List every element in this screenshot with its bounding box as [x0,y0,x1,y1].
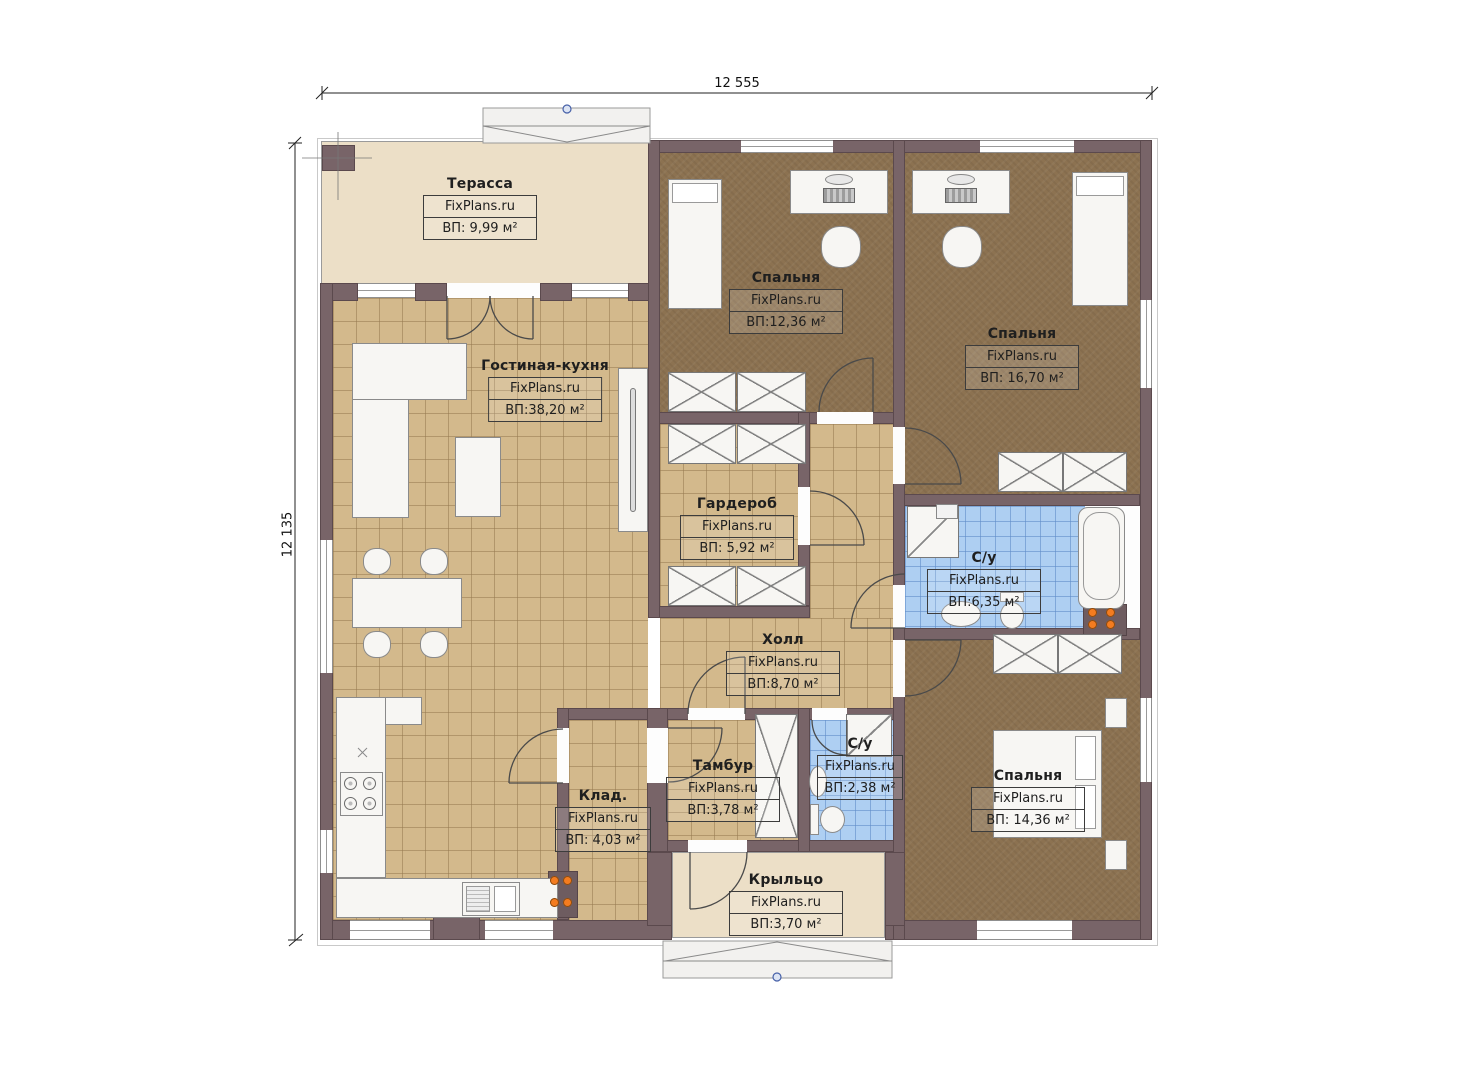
watermark-box: FixPlans.ru ВП: 5,92 м² [680,515,794,560]
room-label-porch: Крыльцо FixPlans.ru ВП:3,70 м² [729,872,843,936]
watermark-text: FixPlans.ru [730,290,842,312]
watermark-box: FixPlans.ru ВП: 14,36 м² [971,787,1085,832]
watermark-box: FixPlans.ru ВП:3,78 м² [666,777,780,822]
room-area: ВП: 16,70 м² [966,368,1078,389]
door-arc [490,296,533,339]
room-name: Спальня [965,326,1079,342]
dimension-top-value: 12 555 [714,76,760,91]
room-name: Тамбур [666,758,780,774]
watermark-text: FixPlans.ru [556,808,650,830]
room-area: ВП: 9,99 м² [424,218,536,239]
watermark-text: FixPlans.ru [972,788,1084,810]
door-arc [905,640,961,696]
roof-marker-icon [563,105,571,113]
watermark-box: FixPlans.ru ВП: 9,99 м² [423,195,537,240]
room-label-bedroom3: Спальня FixPlans.ru ВП: 14,36 м² [971,768,1085,832]
watermark-box: FixPlans.ru ВП: 16,70 м² [965,345,1079,390]
door-arc [905,428,961,484]
room-name: Холл [726,632,840,648]
door-arc [851,574,905,628]
door-arc [447,296,490,339]
watermark-box: FixPlans.ru ВП: 4,03 м² [555,807,651,852]
room-area: ВП:3,70 м² [730,914,842,935]
room-label-bedroom2: Спальня FixPlans.ru ВП: 16,70 м² [965,326,1079,390]
watermark-box: FixPlans.ru ВП:3,70 м² [729,891,843,936]
room-name: Клад. [555,788,651,804]
room-name: Гостиная-кухня [481,358,609,374]
room-name: Гардероб [680,496,794,512]
room-name: С/у [927,550,1041,566]
room-label-bath2: С/у FixPlans.ru ВП:2,38 м² [817,736,903,800]
room-label-bedroom1: Спальня FixPlans.ru ВП:12,36 м² [729,270,843,334]
room-area: ВП: 4,03 м² [556,830,650,851]
room-area: ВП:3,78 м² [667,800,779,821]
watermark-text: FixPlans.ru [928,570,1040,592]
room-area: ВП:38,20 м² [489,400,601,421]
watermark-text: FixPlans.ru [667,778,779,800]
corner-axis-marker [302,132,372,200]
room-area: ВП:12,36 м² [730,312,842,333]
roof-marker-icon [773,973,781,981]
watermark-text: FixPlans.ru [727,652,839,674]
room-name: Спальня [971,768,1085,784]
watermark-box: FixPlans.ru ВП:2,38 м² [817,755,903,800]
room-label-living: Гостиная-кухня FixPlans.ru ВП:38,20 м² [481,358,609,422]
room-area: ВП:2,38 м² [818,778,902,799]
room-area: ВП:8,70 м² [727,674,839,695]
room-name: С/у [817,736,903,752]
dimension-left-value: 12 135 [281,505,296,565]
room-name: Спальня [729,270,843,286]
watermark-box: FixPlans.ru ВП:8,70 м² [726,651,840,696]
room-label-terrace: Терасса FixPlans.ru ВП: 9,99 м² [423,176,537,240]
kitchen-x-marker [358,748,367,757]
room-label-tambour: Тамбур FixPlans.ru ВП:3,78 м² [666,758,780,822]
room-label-wardrobe: Гардероб FixPlans.ru ВП: 5,92 м² [680,496,794,560]
room-area: ВП: 5,92 м² [681,538,793,559]
door-arc [810,491,864,545]
room-label-hall: Холл FixPlans.ru ВП:8,70 м² [726,632,840,696]
door-arc [819,358,873,412]
watermark-text: FixPlans.ru [818,756,902,778]
door-arc [509,729,563,783]
room-label-storage: Клад. FixPlans.ru ВП: 4,03 м² [555,788,651,852]
watermark-text: FixPlans.ru [424,196,536,218]
watermark-text: FixPlans.ru [489,378,601,400]
room-name: Крыльцо [729,872,843,888]
watermark-text: FixPlans.ru [966,346,1078,368]
watermark-box: FixPlans.ru ВП:12,36 м² [729,289,843,334]
room-area: ВП:6,35 м² [928,592,1040,613]
room-name: Терасса [423,176,537,192]
watermark-box: FixPlans.ru ВП:6,35 м² [927,569,1041,614]
room-label-bath1: С/у FixPlans.ru ВП:6,35 м² [927,550,1041,614]
room-area: ВП: 14,36 м² [972,810,1084,831]
watermark-text: FixPlans.ru [730,892,842,914]
floor-plan: 12 555 12 135 Терасса FixPlans.ru ВП: 9,… [0,0,1474,1080]
watermark-text: FixPlans.ru [681,516,793,538]
watermark-box: FixPlans.ru ВП:38,20 м² [488,377,602,422]
